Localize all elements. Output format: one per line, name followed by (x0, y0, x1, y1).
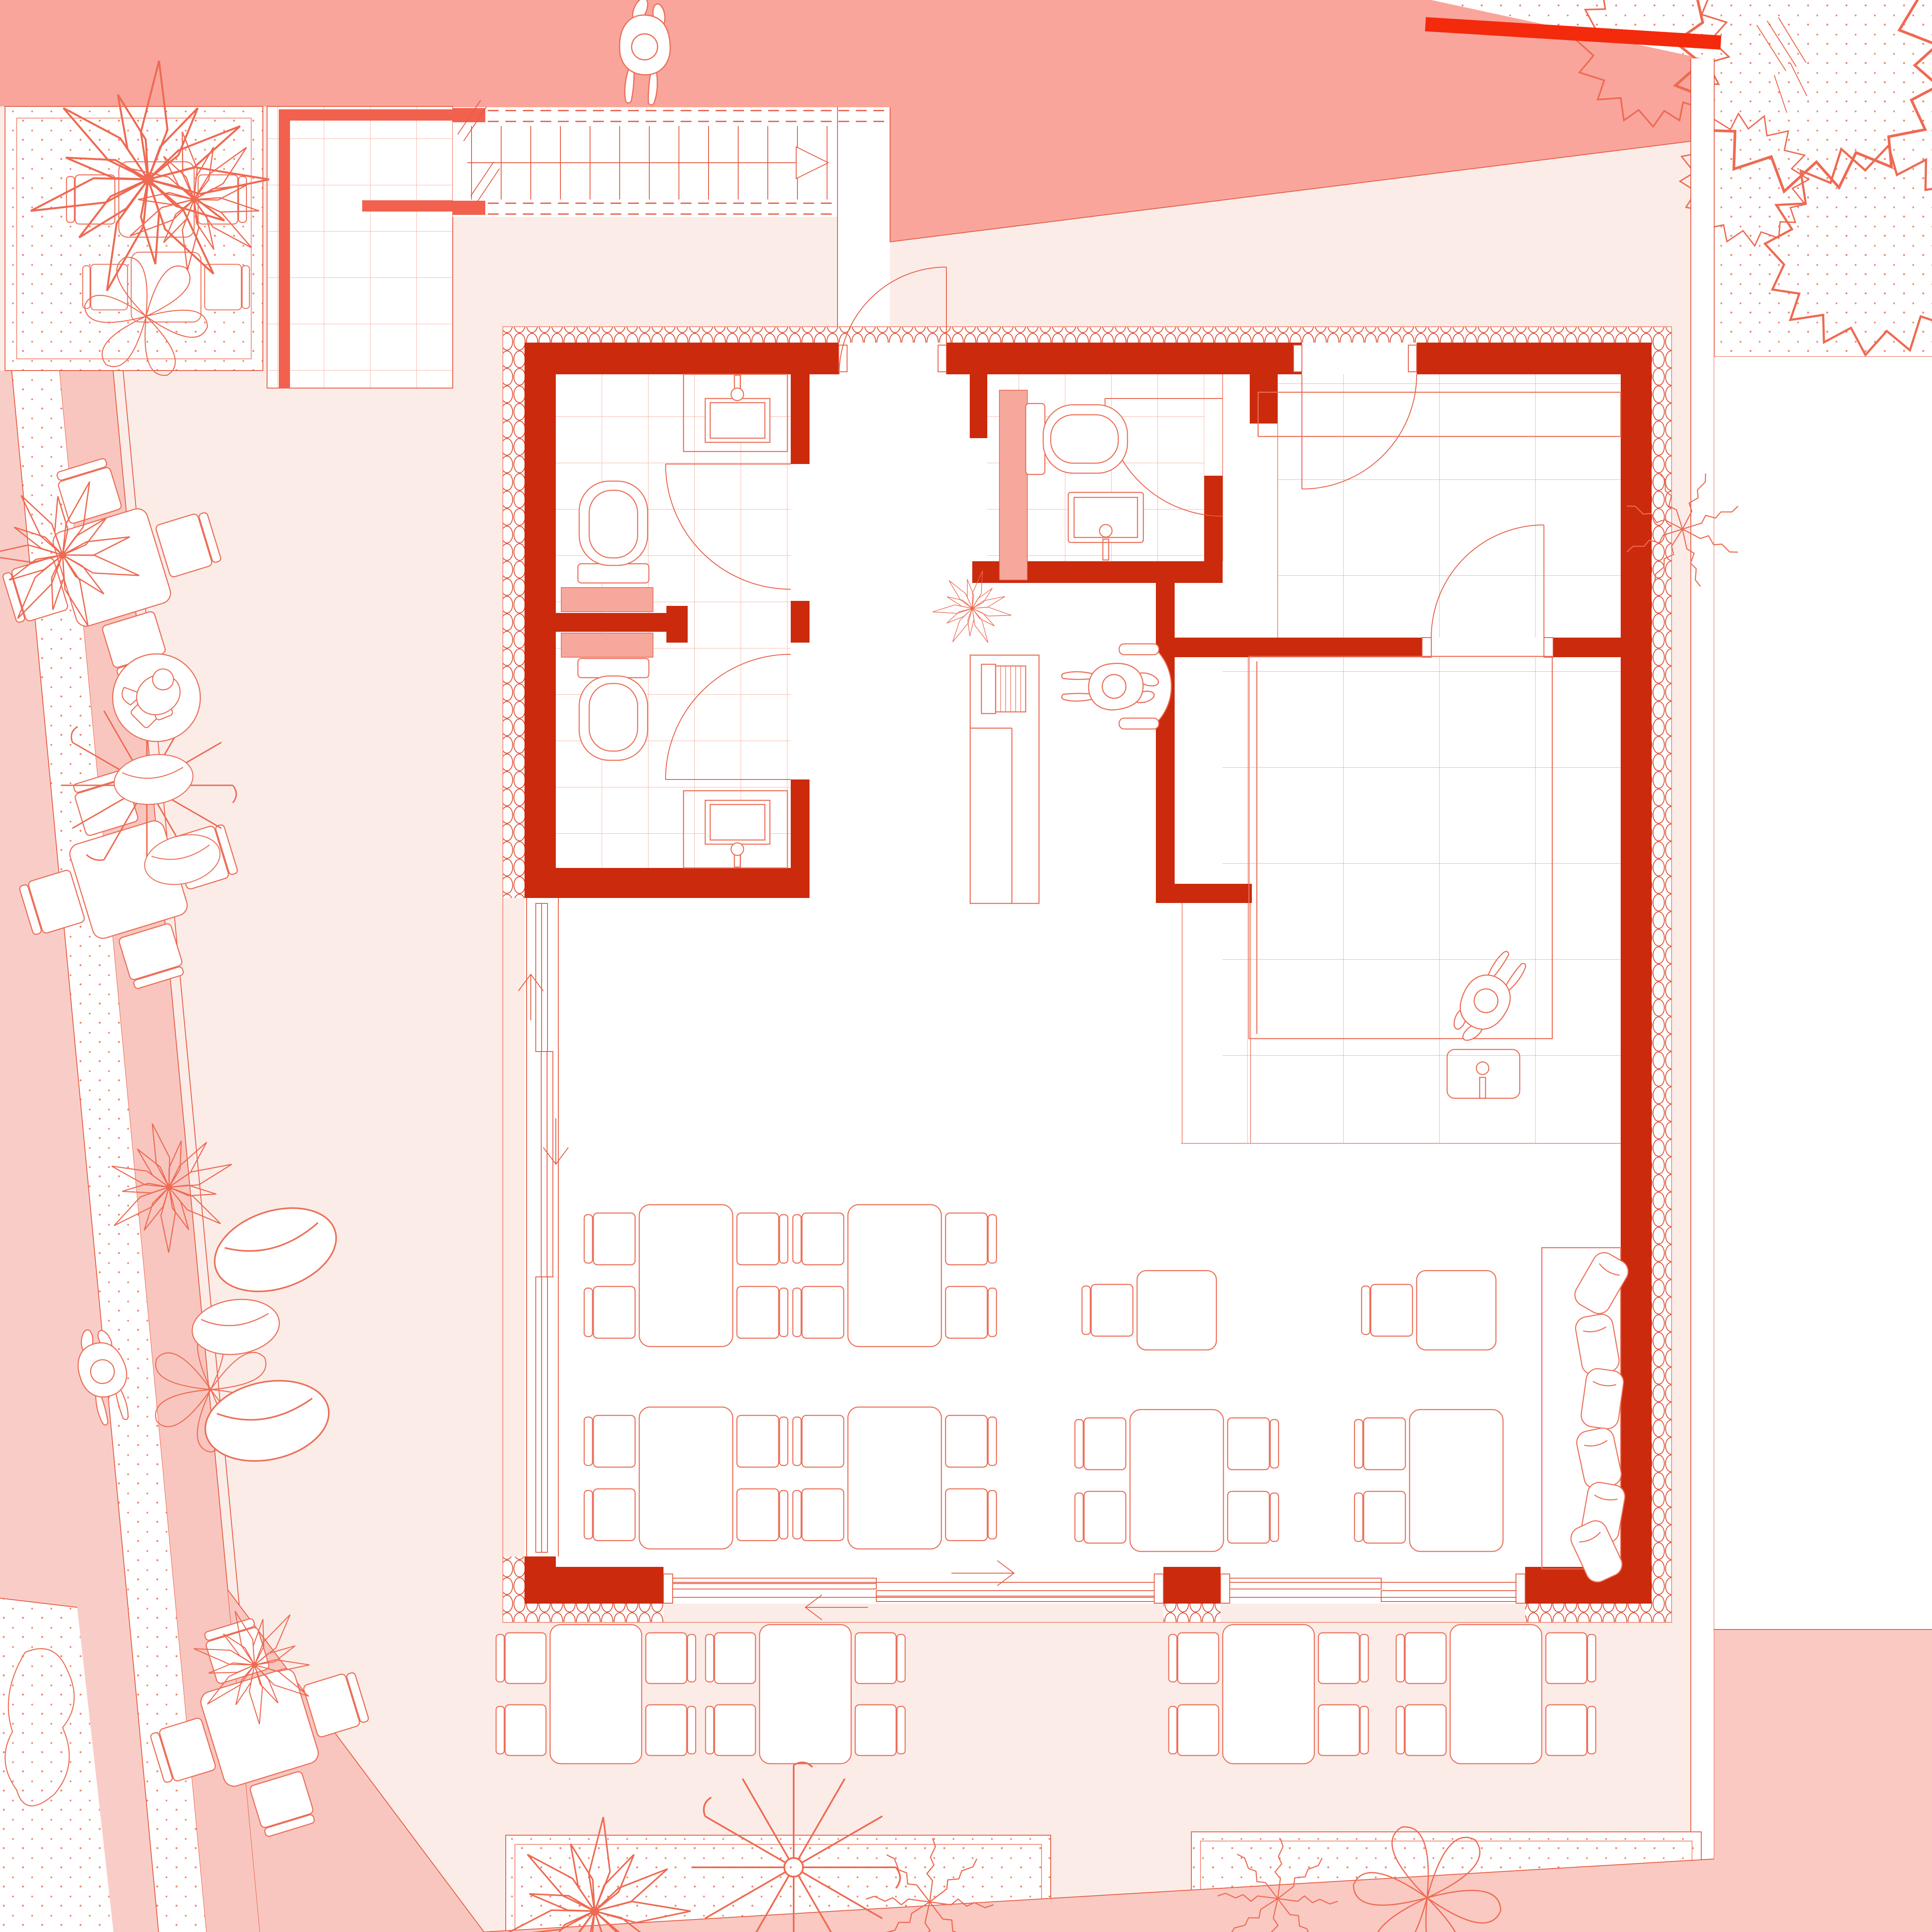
wall-vestibule-stub (970, 374, 987, 438)
wall-kitchen-north (1175, 638, 1431, 657)
wall-accwc-east (1204, 476, 1223, 561)
paving-accent-bar (279, 109, 453, 121)
wall-west-upper (525, 374, 556, 898)
wall-wc-divider (556, 613, 666, 632)
wall-north-right (1417, 343, 1652, 374)
back-kitchen-tiles (1278, 374, 1621, 638)
kitchen-tiles (1223, 657, 1621, 1143)
planter-top-left (5, 106, 263, 371)
wall-wc-east (791, 374, 810, 464)
wall-hall-stub (1250, 374, 1278, 424)
toilet (578, 658, 649, 760)
wall-wc-east (791, 601, 810, 643)
low-wall (561, 588, 653, 612)
paving-accent-bar (279, 109, 290, 388)
wall-north-mid (946, 343, 1302, 374)
vacant-lot (1714, 357, 1932, 1629)
low-wall (999, 390, 1027, 580)
wall-south-pier (1163, 1567, 1221, 1604)
wall-east (1621, 374, 1652, 1604)
wall-wc-east (791, 779, 810, 868)
paving-tiles (267, 106, 484, 388)
wall-reception-return (1156, 884, 1252, 903)
toilet (578, 481, 649, 583)
wall-south-pier (525, 1567, 663, 1604)
wall-wc-divider-stub (666, 606, 688, 643)
wall-wc-south (525, 868, 810, 898)
wall-north-left (525, 343, 839, 374)
low-wall (561, 633, 653, 657)
wall-reception-east (1156, 583, 1175, 903)
toilet (1026, 404, 1127, 474)
floor-plan-canvas: const data = JSON.parse(document.getElem… (0, 0, 1932, 1932)
cushion (1580, 1367, 1625, 1430)
footpath-right (1691, 58, 1714, 1859)
wall-kitchen-north (1544, 638, 1621, 657)
